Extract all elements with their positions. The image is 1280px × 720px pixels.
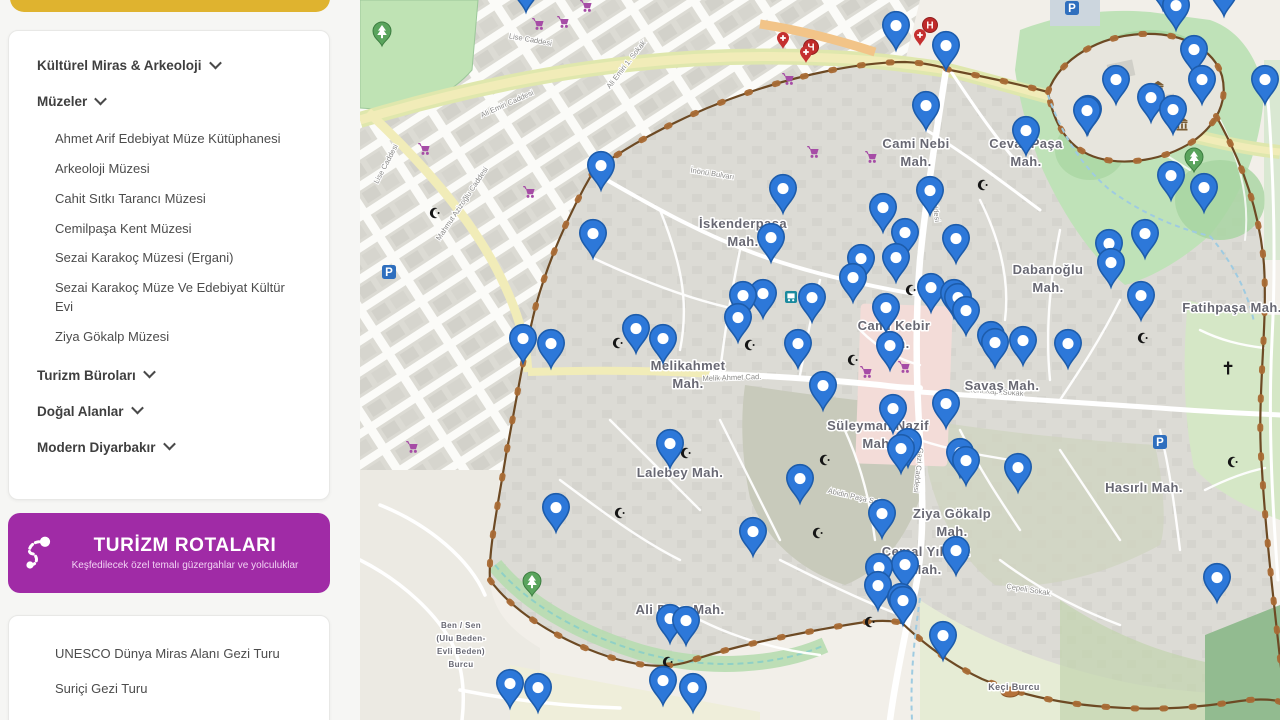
banner-title: TURİZM ROTALARI xyxy=(60,535,310,557)
chevron-down-icon xyxy=(143,366,156,379)
district-label: Lalebey Mah. xyxy=(637,465,723,480)
app-window: Kültürel Miras & Arkeoloji Müzeler Ahmet… xyxy=(0,0,1280,720)
sidebar-item-kulturel-miras[interactable]: Kültürel Miras & Arkeoloji xyxy=(9,58,329,73)
svg-text:P: P xyxy=(1068,3,1076,15)
sidebar-item-turizm-burolari[interactable]: Turizm Büroları xyxy=(9,368,329,383)
sidebar-item-museum[interactable]: Ziya Gökalp Müzesi xyxy=(55,328,305,347)
hospital-icon: H xyxy=(923,18,938,33)
parking-icon: P xyxy=(1065,1,1079,15)
chevron-down-icon xyxy=(94,92,107,105)
tours-card: UNESCO Dünya Miras Alanı Gezi Turu Suriç… xyxy=(8,615,330,720)
categories-card: Kültürel Miras & Arkeoloji Müzeler Ahmet… xyxy=(8,30,330,500)
tourism-routes-banner[interactable]: TURİZM ROTALARI Keşfedilecek özel temalı… xyxy=(8,513,330,593)
svg-text:H: H xyxy=(926,21,933,32)
sidebar-item-museum[interactable]: Sezai Karakoç Müzesi (Ergani) xyxy=(55,249,305,268)
category-label: Modern Diyarbakır xyxy=(37,440,156,455)
sidebar-item-muzeler[interactable]: Müzeler xyxy=(9,94,329,109)
sidebar-item-museum[interactable]: Sezai Karakoç Müze Ve Edebiyat Kültür Ev… xyxy=(55,279,305,317)
category-label: Turizm Büroları xyxy=(37,368,136,383)
svg-text:P: P xyxy=(1156,437,1164,449)
district-label: Savaş Mah. xyxy=(965,378,1040,393)
district-label: Hasırlı Mah. xyxy=(1105,480,1183,495)
sidebar-item-tour[interactable]: Suriçi Gezi Turu xyxy=(55,679,301,699)
district-label: Fatihpaşa Mah. xyxy=(1182,300,1280,315)
chevron-down-icon xyxy=(131,402,144,415)
sidebar: Kültürel Miras & Arkeoloji Müzeler Ahmet… xyxy=(8,0,334,720)
tour-list: UNESCO Dünya Miras Alanı Gezi Turu Suriç… xyxy=(55,644,301,698)
banner-text: TURİZM ROTALARI Keşfedilecek özel temalı… xyxy=(60,535,320,571)
parking-icon: P xyxy=(1153,435,1167,449)
route-icon xyxy=(24,535,60,571)
sidebar-item-modern-diyarbakir[interactable]: Modern Diyarbakır xyxy=(9,440,329,455)
bus-stop-icon xyxy=(785,291,797,303)
sidebar-item-tour[interactable]: UNESCO Dünya Miras Alanı Gezi Turu xyxy=(55,644,301,664)
district-label: Keçi Burcu xyxy=(988,682,1040,692)
category-label: Kültürel Miras & Arkeoloji xyxy=(37,58,202,73)
map-canvas[interactable]: H P xyxy=(360,0,1280,720)
sidebar-item-museum[interactable]: Ahmet Arif Edebiyat Müze Kütüphanesi xyxy=(55,130,305,149)
banner-subtitle: Keşfedilecek özel temalı güzergahlar ve … xyxy=(60,560,310,571)
header-bar[interactable] xyxy=(10,0,330,12)
category-label: Müzeler xyxy=(37,94,87,109)
sidebar-item-dogal-alanlar[interactable]: Doğal Alanlar xyxy=(9,404,329,419)
sidebar-item-museum[interactable]: Cemilpaşa Kent Müzesi xyxy=(55,220,305,239)
category-label: Doğal Alanlar xyxy=(37,404,124,419)
museum-list: Ahmet Arif Edebiyat Müze Kütüphanesi Ark… xyxy=(55,130,305,347)
sidebar-item-museum[interactable]: Cahit Sıtkı Tarancı Müzesi xyxy=(55,190,305,209)
chevron-down-icon xyxy=(209,56,222,69)
sidebar-item-museum[interactable]: Arkeoloji Müzesi xyxy=(55,160,305,179)
svg-text:P: P xyxy=(385,267,393,279)
parking-icon: P xyxy=(382,265,396,279)
chevron-down-icon xyxy=(163,438,176,451)
